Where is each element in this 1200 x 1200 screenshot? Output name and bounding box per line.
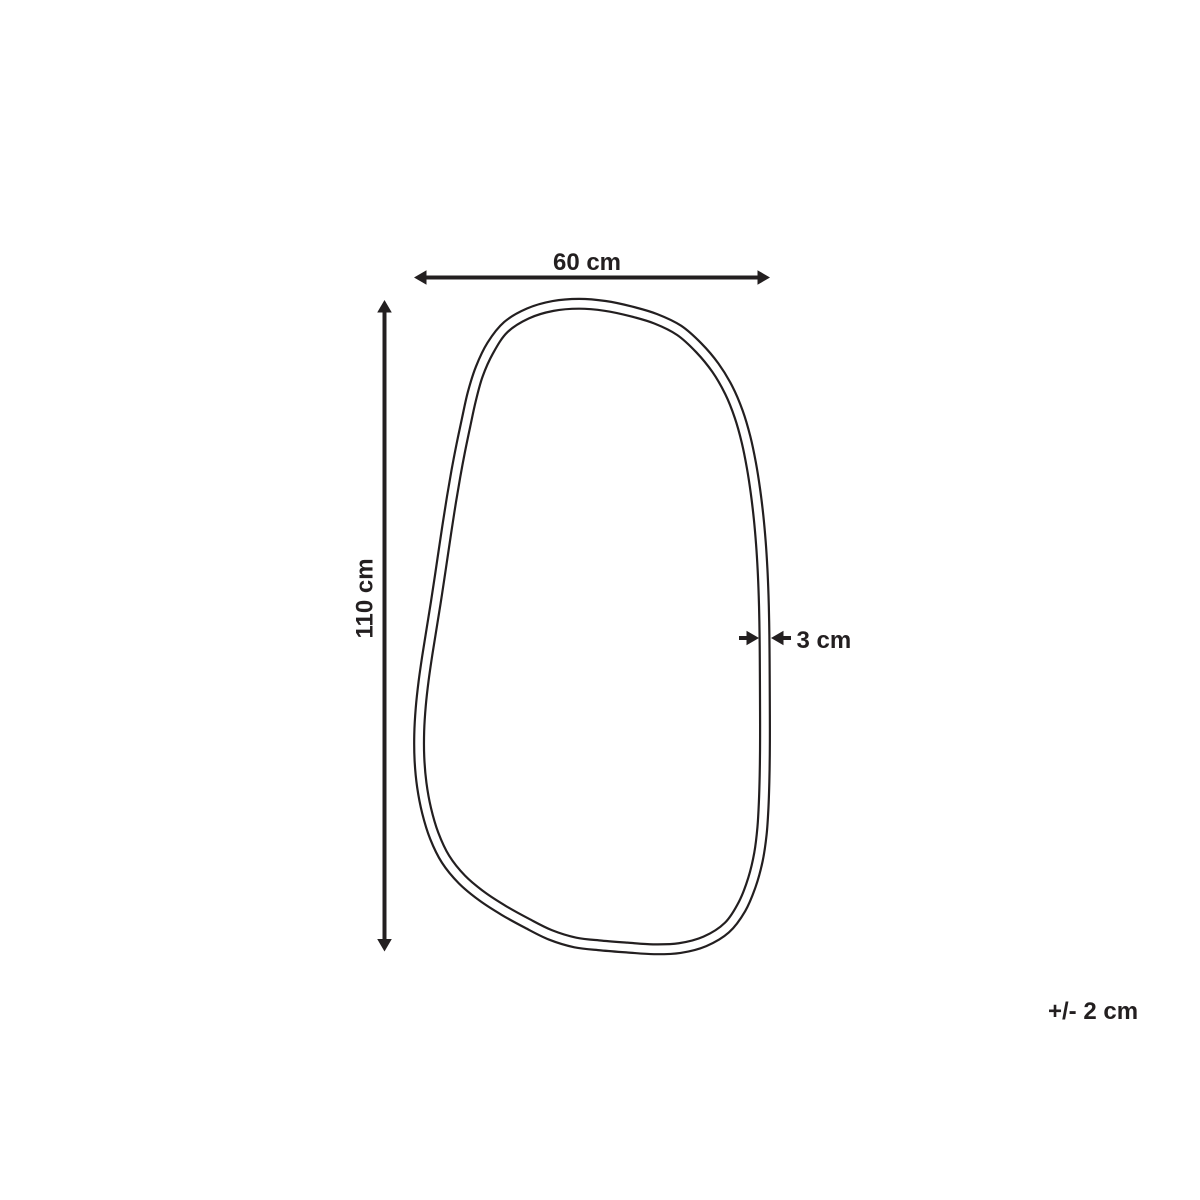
svg-text:60 cm: 60 cm (553, 249, 621, 276)
svg-text:110 cm: 110 cm (352, 558, 379, 638)
svg-text:3 cm: 3 cm (797, 627, 852, 654)
svg-text:+/- 2 cm: +/- 2 cm (1048, 998, 1138, 1025)
